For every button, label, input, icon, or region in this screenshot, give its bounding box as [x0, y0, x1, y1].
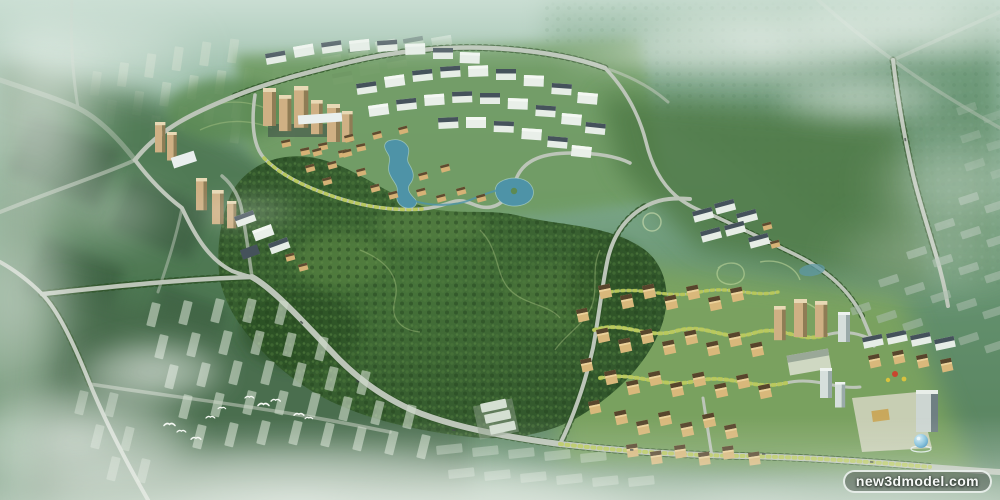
top-haze-band — [0, 0, 1000, 70]
watermark-badge: new3dmodel.com — [843, 470, 992, 493]
mist-wisp — [183, 196, 307, 228]
aerial-render-canvas: new3dmodel.com — [0, 0, 1000, 500]
fog-west — [52, 177, 172, 247]
cloud — [765, 70, 955, 126]
render-artwork — [0, 0, 1000, 500]
